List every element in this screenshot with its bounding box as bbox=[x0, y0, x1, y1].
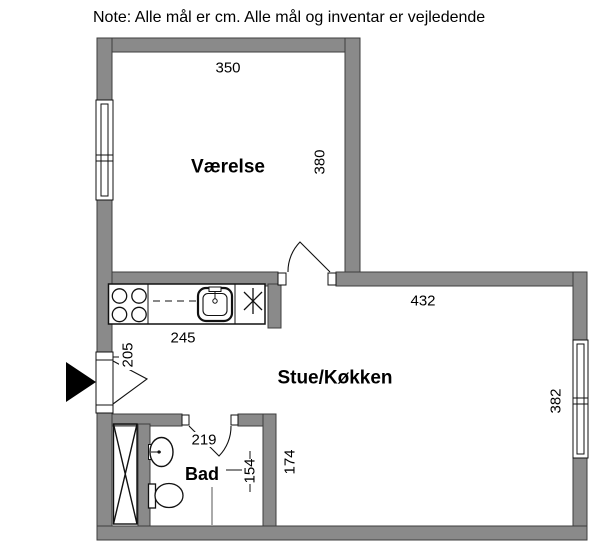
entrance-opening bbox=[96, 352, 113, 413]
dim-bad-height: 174 bbox=[282, 449, 299, 474]
wardrobe-icon bbox=[114, 424, 138, 524]
dim-kitchen-counter: 245 bbox=[170, 330, 195, 347]
bad-door-jamb-right bbox=[231, 415, 238, 425]
wall-top bbox=[97, 38, 360, 52]
dim-entry-opening: 205 bbox=[120, 342, 137, 367]
burner-2 bbox=[132, 289, 146, 303]
room-label-vaerelse: Værelse bbox=[191, 157, 265, 178]
dim-bad-width: 154 bbox=[242, 458, 259, 483]
floorplan-svg: Note: Alle mål er cm. Alle mål og invent… bbox=[0, 0, 600, 545]
wall-kitchen-stub bbox=[268, 284, 281, 328]
sink-faucet-bar bbox=[209, 287, 221, 292]
dim-vaerelse-height: 380 bbox=[312, 149, 329, 174]
burner-3 bbox=[112, 307, 126, 321]
wall-stue-top bbox=[336, 272, 587, 286]
wall-vaerelse-right bbox=[345, 38, 360, 286]
room-label-stue: Stue/Køkken bbox=[277, 368, 392, 389]
wall-bottom bbox=[97, 526, 587, 540]
washbasin-drain bbox=[157, 450, 160, 453]
floorplan-canvas: Note: Alle mål er cm. Alle mål og invent… bbox=[0, 0, 600, 545]
vaerelse-door-jamb-right bbox=[328, 273, 336, 285]
dim-stue-width: 432 bbox=[410, 293, 435, 310]
toilet-icon bbox=[155, 484, 183, 508]
dim-stue-height: 382 bbox=[548, 388, 565, 413]
room-label-bad: Bad bbox=[185, 464, 219, 484]
wall-closet-right bbox=[138, 424, 150, 526]
wall-bad-right bbox=[263, 414, 276, 526]
kitchen-counter bbox=[109, 284, 266, 324]
note-text: Note: Alle mål er cm. Alle mål og invent… bbox=[93, 8, 485, 26]
window-right-frame bbox=[577, 344, 584, 454]
wardrobe-cross bbox=[114, 424, 138, 524]
entrance-arrow-icon bbox=[66, 362, 96, 402]
burner-1 bbox=[112, 289, 126, 303]
kitchen-sink-icon bbox=[198, 287, 232, 321]
vaerelse-door-swing bbox=[288, 242, 330, 272]
window-left-frame bbox=[101, 104, 108, 196]
dim-vaerelse-width: 350 bbox=[215, 60, 240, 77]
bad-door-jamb-left bbox=[182, 415, 189, 425]
vaerelse-door-jamb-left bbox=[278, 273, 286, 285]
burner-4 bbox=[132, 307, 146, 321]
dim-hall: 219 bbox=[191, 432, 216, 449]
sink-drain bbox=[213, 299, 217, 303]
